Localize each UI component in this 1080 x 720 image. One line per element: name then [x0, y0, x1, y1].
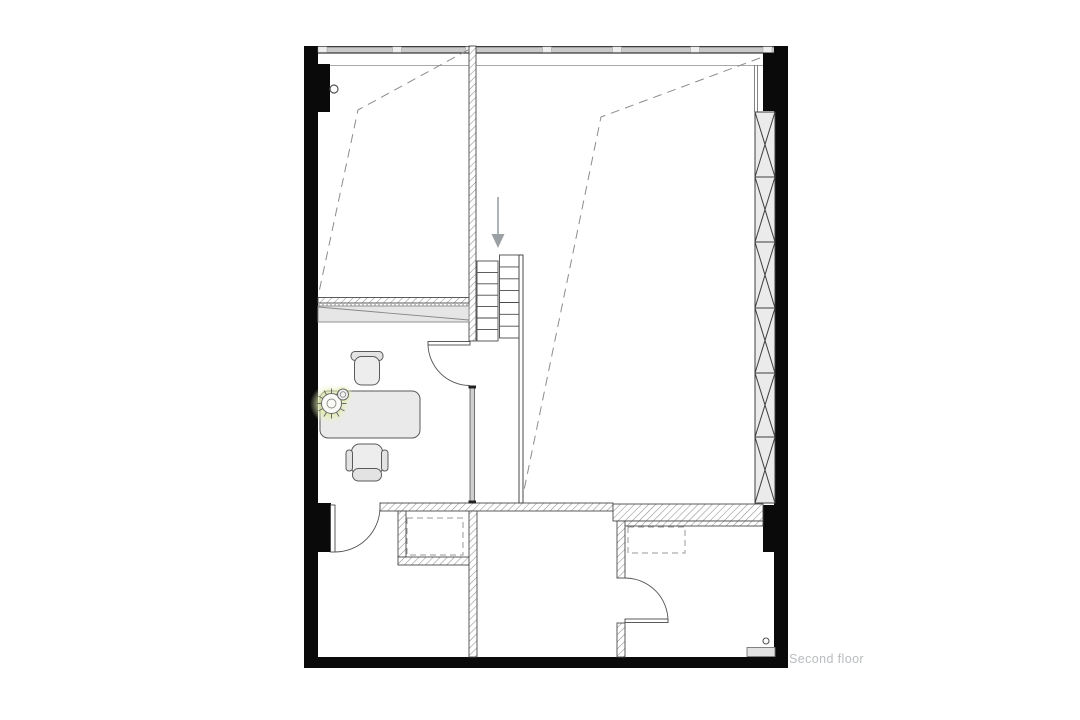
- x-brace-panel: [755, 308, 775, 373]
- door-swing-arc: [625, 578, 668, 621]
- x-brace-panel: [755, 177, 775, 242]
- mullion-icon: [543, 47, 552, 53]
- x-brace-panel: [755, 373, 775, 437]
- glass-partition: [470, 387, 475, 502]
- door-swing-arc: [335, 507, 380, 552]
- mullion-icon: [763, 47, 772, 53]
- northeast-pier: [763, 53, 778, 111]
- mullion-icon: [691, 47, 700, 53]
- stair-flight-east: [500, 255, 522, 338]
- closet-west-wall: [398, 511, 406, 557]
- southeast-room-door: [625, 578, 668, 623]
- mullion-icon: [393, 47, 402, 53]
- stairs: [477, 255, 521, 341]
- panel-body: [318, 306, 469, 322]
- closet-outline-west: [407, 518, 463, 555]
- x-brace-panel: [755, 242, 775, 308]
- interior-walls: [318, 46, 763, 657]
- sliding-panel: [318, 305, 469, 322]
- southeast-room-wall-upper: [617, 521, 625, 578]
- office-north-door: [428, 342, 470, 386]
- entry-details: [747, 638, 775, 657]
- east-wall: [774, 46, 788, 668]
- south-wall: [304, 657, 788, 668]
- x-brace-panel: [755, 437, 775, 503]
- void-outline-west: [319, 50, 468, 292]
- entry-step: [747, 648, 775, 657]
- office-south-door: [331, 505, 381, 552]
- door-stop-circle-icon: [763, 638, 769, 644]
- braced-glazing-column: [755, 65, 775, 503]
- southwest-door-jamb: [318, 503, 331, 552]
- mullion-icon: [613, 47, 622, 53]
- partition-end-cap: [469, 386, 477, 389]
- floor-label: Second floor: [789, 652, 864, 666]
- stair-hall-east-wall: [519, 255, 523, 503]
- x-brace-panel: [755, 112, 775, 177]
- southeast-pier: [763, 505, 775, 552]
- fixture-circle-icon: [330, 85, 338, 93]
- east-room-south-wall: [613, 504, 763, 521]
- task-chair-south: [346, 444, 388, 481]
- window-band: [318, 46, 774, 66]
- west-wall: [304, 46, 318, 668]
- east-room-south-wall-inner: [623, 521, 763, 526]
- partition-end-cap: [469, 501, 477, 504]
- mullion-icon: [318, 47, 327, 53]
- stairs-down-arrow-icon: [492, 197, 505, 248]
- closet-outline-east: [628, 527, 685, 553]
- doors: [331, 342, 669, 623]
- office-furniture: [310, 352, 420, 482]
- southeast-room-wall-lower: [617, 623, 625, 657]
- core-wall-lower: [469, 511, 477, 657]
- core-wall-upper: [469, 46, 476, 341]
- office-north-partition: [318, 298, 469, 304]
- floor-plan-page: Second floor: [0, 0, 1080, 720]
- task-chair-north: [351, 352, 383, 386]
- closet-south-wall: [398, 557, 470, 565]
- void-outline-east: [522, 58, 760, 500]
- northwest-pier: [317, 64, 330, 112]
- office-south-wall: [380, 503, 613, 511]
- floor-plan-drawing: [0, 0, 1080, 720]
- door-swing-arc: [428, 344, 470, 386]
